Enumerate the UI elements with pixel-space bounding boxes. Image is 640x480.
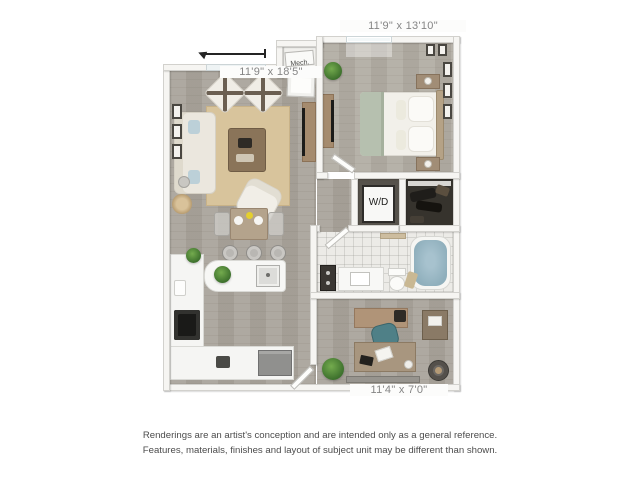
living-wall-art-1 — [172, 104, 182, 119]
dining-chair-left — [214, 212, 230, 236]
mirror-knob-1 — [326, 271, 330, 275]
disclaimer-line-1: Renderings are an artist's conception an… — [0, 428, 640, 443]
wall-left — [163, 64, 170, 391]
floorplan: W/D — [158, 26, 460, 398]
sink-faucet — [266, 273, 270, 277]
desk-mug — [404, 360, 413, 369]
bedroom-art-top-2 — [438, 44, 447, 56]
wall-closet-front — [399, 225, 460, 232]
wall-flex-top — [310, 292, 460, 299]
canister-set — [174, 280, 186, 296]
mirror-knob-2 — [326, 281, 330, 285]
bar-stool-3 — [270, 245, 286, 261]
dining-flowers — [246, 212, 253, 219]
living-wall-art-3 — [172, 144, 182, 159]
wall-bedroom-bottom-a — [316, 172, 328, 179]
closet-shelf — [408, 181, 451, 186]
wall-bath-top-b — [348, 225, 399, 232]
floorplan-page: W/D — [0, 0, 640, 480]
small-appliance — [216, 356, 230, 368]
coffee-table-decor — [238, 138, 252, 148]
bar-stool-1 — [222, 245, 238, 261]
island-plant — [214, 266, 231, 283]
bedroom-dimension-label: 11'9" x 13'10" — [340, 20, 466, 32]
closet-basket — [410, 216, 424, 223]
tv-bedroom — [331, 100, 334, 142]
vanity-mirror — [320, 265, 336, 291]
disclaimer: Renderings are an artist's conception an… — [0, 428, 640, 458]
cooktop — [174, 310, 200, 340]
floor-mat — [346, 376, 420, 383]
tv-living — [302, 108, 305, 156]
dimension-arrow-tick — [264, 49, 266, 58]
window-light-pool — [346, 43, 392, 57]
dimension-arrowhead-icon — [197, 49, 207, 59]
dining-plate-2 — [254, 216, 263, 225]
coffee-table-tray — [236, 154, 254, 162]
cabinet-papers — [428, 316, 442, 326]
mech-label-card: Mech. — [284, 50, 314, 67]
wall-right — [453, 36, 460, 391]
bedroom-plant — [324, 62, 342, 80]
pillow-3 — [396, 100, 406, 120]
toilet-tank — [388, 268, 406, 276]
console-bag — [394, 310, 406, 322]
bedroom-art-right-2 — [443, 83, 452, 98]
bedroom-art-right-1 — [443, 62, 452, 77]
flex-dimension-label: 11'4" x 7'0" — [350, 384, 448, 396]
pillow-4 — [396, 130, 406, 150]
wall-bedroom-left — [316, 36, 323, 179]
pillow-1 — [408, 96, 434, 122]
table-lamp-top — [424, 77, 432, 85]
sofa-pillow-1 — [188, 120, 200, 134]
bedroom-art-right-3 — [443, 104, 452, 119]
dimension-arrow — [204, 53, 266, 55]
wall-bedroom-bottom-b — [354, 172, 460, 179]
headboard — [436, 90, 444, 160]
table-lamp-bottom — [424, 160, 432, 168]
floor-lamp — [178, 176, 190, 188]
bedroom-art-top-1 — [426, 44, 435, 56]
hall-floor — [317, 179, 351, 232]
bathtub-water — [414, 240, 447, 286]
vanity-sink — [350, 272, 370, 286]
flex-plant — [322, 358, 344, 380]
bathroom-light — [380, 233, 406, 239]
pillow-2 — [408, 126, 434, 152]
bedroom-window — [346, 36, 392, 43]
wall-laundry-left — [351, 179, 358, 231]
toilet-bowl — [389, 276, 405, 291]
living-wall-art-2 — [172, 124, 182, 139]
fan-center — [435, 367, 442, 374]
washer-dryer-label: W/D — [362, 197, 395, 208]
bed-throw — [360, 92, 384, 156]
counter-plant — [186, 248, 201, 263]
wall-laundry-right — [399, 179, 406, 231]
dining-chair-right — [268, 212, 284, 236]
dishwasher — [258, 350, 292, 376]
living-dimension-label: 11'9" x 18'5" — [220, 66, 322, 78]
coffee-table — [228, 128, 266, 172]
basket-plant — [172, 194, 192, 214]
bar-stool-2 — [246, 245, 262, 261]
disclaimer-line-2: Features, materials, finishes and layout… — [0, 443, 640, 458]
dining-plate-1 — [234, 216, 243, 225]
